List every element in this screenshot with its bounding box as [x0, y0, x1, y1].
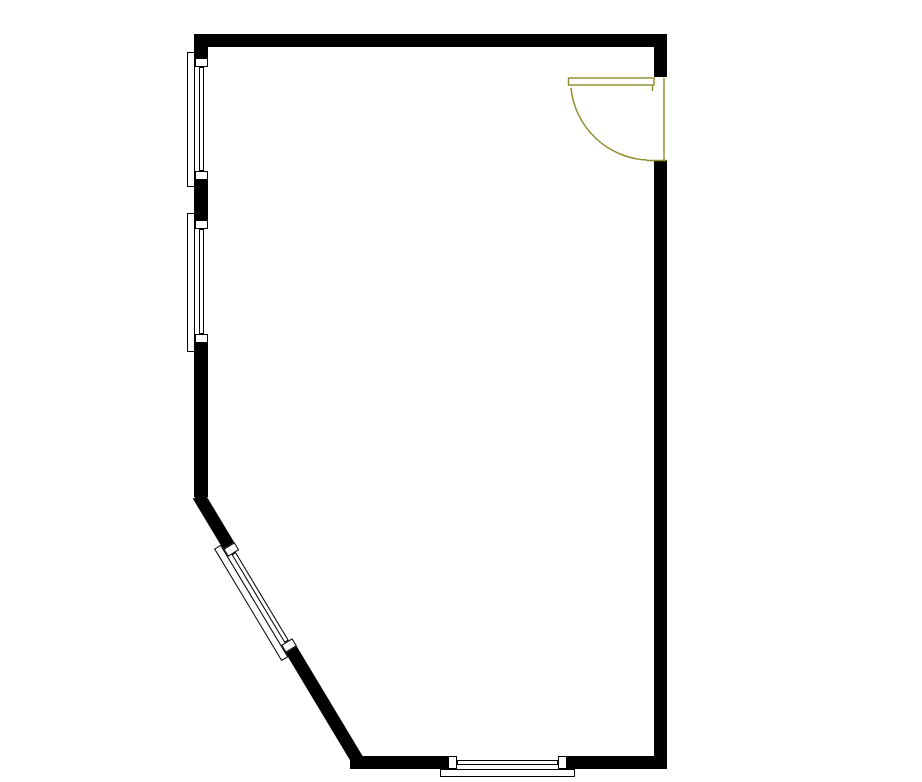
door-leaf[interactable] — [569, 78, 655, 85]
door-swing-arc — [571, 88, 647, 160]
floorplan-canvas[interactable] — [0, 0, 922, 782]
door-top-right[interactable] — [0, 0, 922, 782]
